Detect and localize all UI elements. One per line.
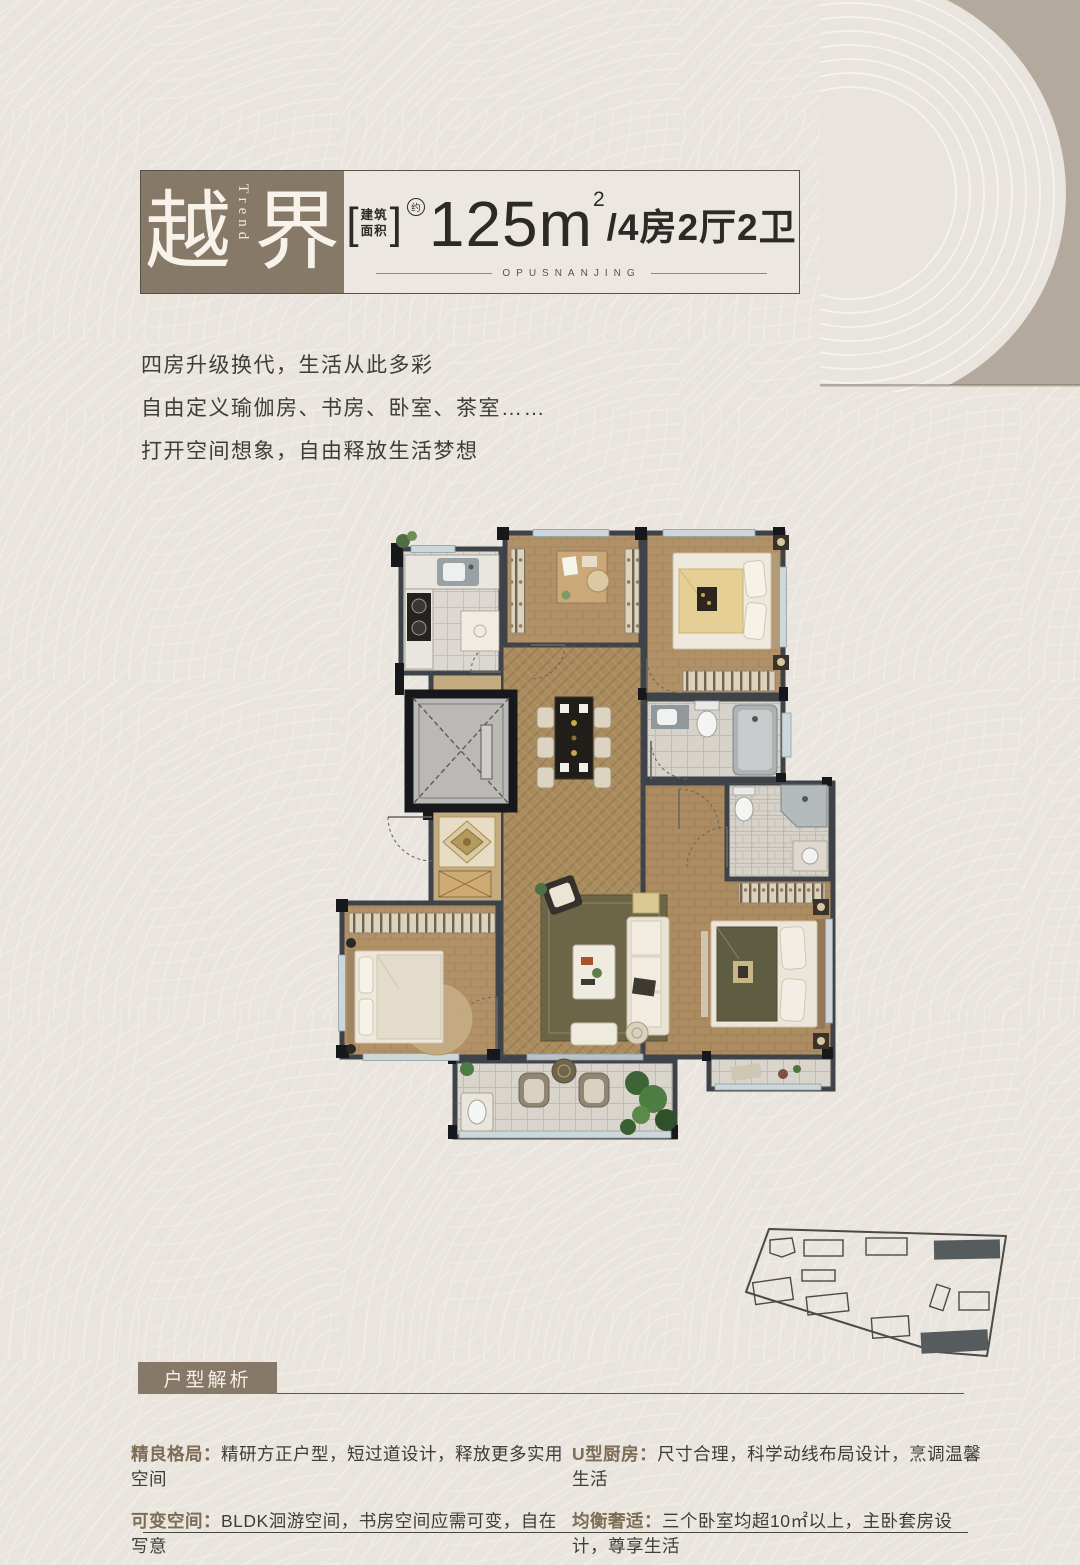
area-row: [ 建筑 面积 ] 约 125m 2 /4房2厅2卫 xyxy=(346,192,796,256)
header-plate: 越界 越 Trend 界 [ 建筑 面积 ] 约 125m 2 /4房2厅2卫 … xyxy=(140,170,800,294)
title-char-right: 界 xyxy=(254,189,340,275)
brand-row: OPUSNANJING xyxy=(376,268,767,279)
brand-line-right xyxy=(651,273,768,274)
foyer-furniture xyxy=(439,817,495,897)
analysis-title-rule xyxy=(277,1393,964,1394)
corner-arc-decoration xyxy=(820,0,1080,392)
elevator xyxy=(409,694,513,808)
intro-copy: 四房升级换代，生活从此多彩 自由定义瑜伽房、书房、卧室、茶室…… 打开空间想象，… xyxy=(141,344,546,473)
poster-page: 越界 越 Trend 界 [ 建筑 面积 ] 约 125m 2 /4房2厅2卫 … xyxy=(0,0,1080,1565)
bracket-close: ] xyxy=(390,205,402,242)
area-number: 125m xyxy=(429,192,593,256)
intro-line-1: 四房升级换代，生活从此多彩 xyxy=(141,344,546,387)
floor-plan xyxy=(335,527,850,1145)
intro-line-3: 打开空间想象，自由释放生活梦想 xyxy=(141,430,546,473)
title-box: 越界 越 Trend 界 xyxy=(141,171,344,293)
area-label-line1: 建筑 xyxy=(361,208,388,224)
title-en: Trend xyxy=(234,184,251,280)
layout-text: /4房2厅2卫 xyxy=(607,197,797,251)
feature-bedrooms: 均衡奢适：三个卧室均超10㎡以上，主卧套房设计，尊享生活 xyxy=(572,1508,983,1558)
analysis-section-title: 户型解析 xyxy=(138,1362,277,1394)
area-label: 建筑 面积 xyxy=(361,208,388,239)
header-info: [ 建筑 面积 ] 约 125m 2 /4房2厅2卫 OPUSNANJING xyxy=(344,171,799,293)
brand-line-left xyxy=(376,273,493,274)
feature-flexible-space: 可变空间：BLDK洄游空间，书房空间应需可变，自在写意 xyxy=(131,1508,572,1558)
feature-kitchen: U型厨房：尺寸合理，科学动线布局设计，烹调温馨生活 xyxy=(572,1441,983,1491)
living-room-furniture xyxy=(535,874,669,1045)
feature-kitchen-label: U型厨房： xyxy=(572,1444,657,1464)
intro-line-2: 自由定义瑜伽房、书房、卧室、茶室…… xyxy=(141,387,546,430)
dining-set xyxy=(537,697,611,788)
approx-mark: 约 xyxy=(407,198,425,216)
title-char-left: 越 xyxy=(145,189,231,275)
bracket-open: [ xyxy=(346,205,358,242)
feature-list: 精良格局：精研方正户型，短过道设计，释放更多实用空间 U型厨房：尺寸合理，科学动… xyxy=(131,1441,983,1558)
brand-text: OPUSNANJING xyxy=(492,268,650,279)
area-label-line2: 面积 xyxy=(361,224,388,240)
bottom-divider xyxy=(143,1532,968,1533)
site-plan xyxy=(730,1200,1060,1380)
feature-bedrooms-label: 均衡奢适： xyxy=(572,1511,662,1531)
feature-flexible-space-label: 可变空间： xyxy=(131,1511,221,1531)
feature-layout-label: 精良格局： xyxy=(131,1444,221,1464)
feature-layout: 精良格局：精研方正户型，短过道设计，释放更多实用空间 xyxy=(131,1441,572,1491)
area-exponent: 2 xyxy=(593,188,605,212)
